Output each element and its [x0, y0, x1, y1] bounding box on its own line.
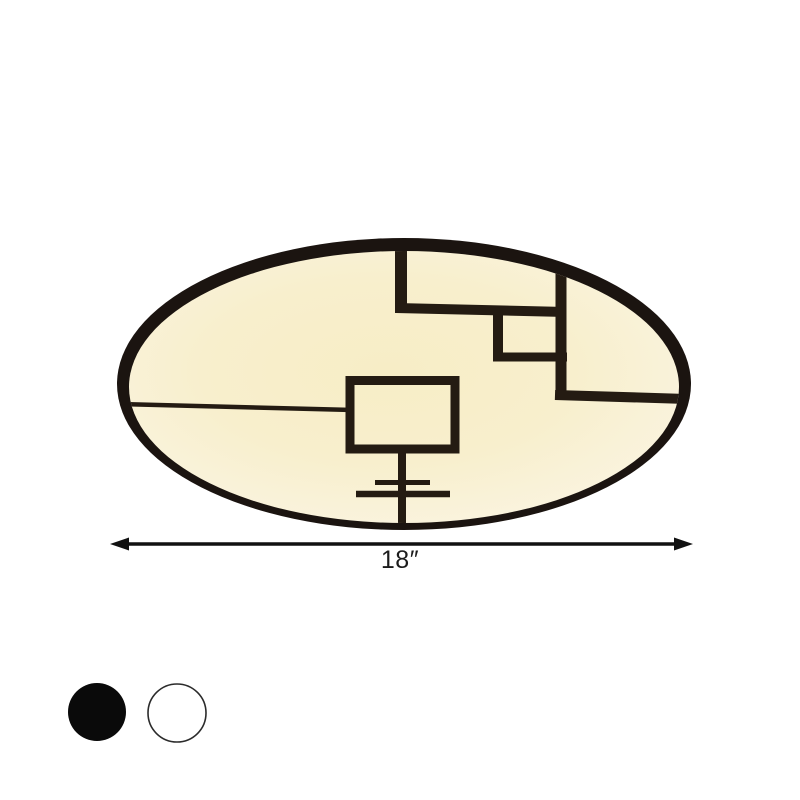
color-swatches: [68, 683, 206, 742]
left-arrowhead-icon: [110, 538, 129, 551]
ceiling-light-image: 18″: [0, 0, 800, 800]
color-swatch-black[interactable]: [68, 683, 126, 741]
pattern-top-horizontal: [396, 308, 566, 312]
dimension-label: 18″: [381, 546, 419, 574]
product-photo: 18″: [0, 0, 800, 800]
color-swatch-white[interactable]: [148, 684, 206, 742]
pattern-right-horizontal: [555, 395, 688, 399]
right-arrowhead-icon: [674, 538, 693, 551]
dimension-annotation: 18″: [110, 538, 693, 575]
